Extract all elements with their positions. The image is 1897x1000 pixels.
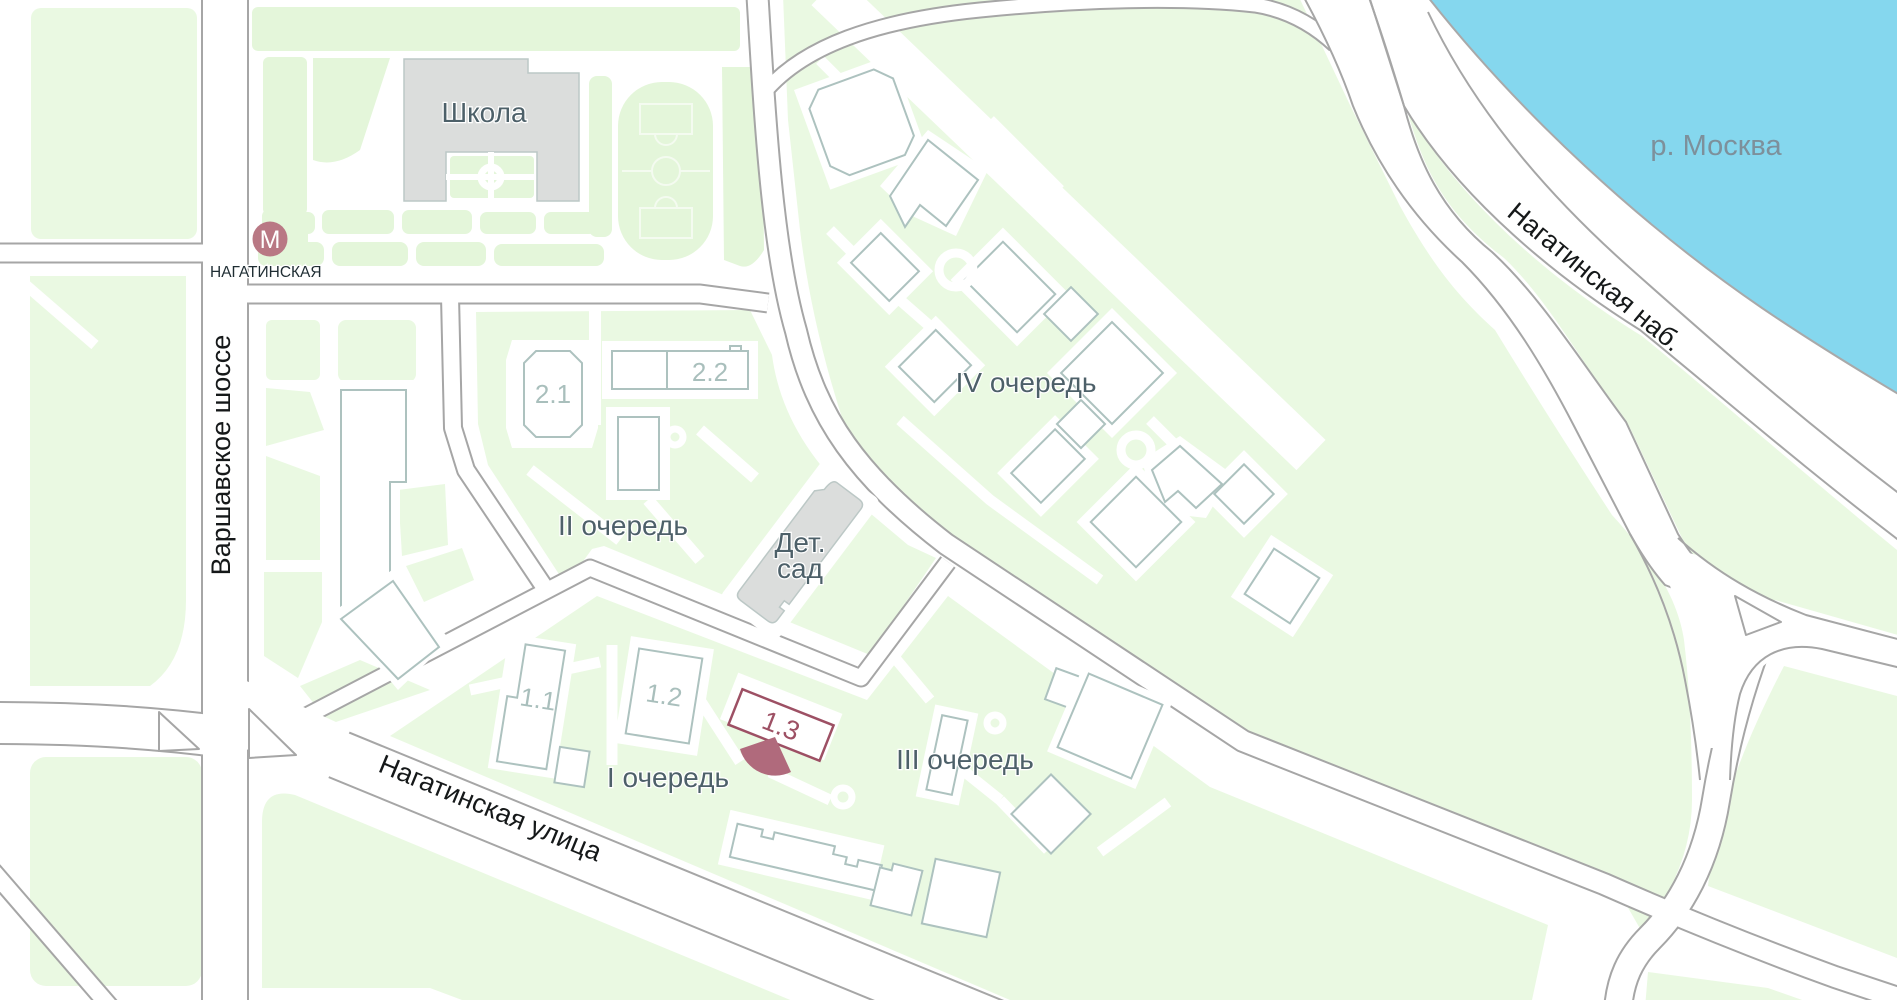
svg-text:НАГАТИНСКАЯ: НАГАТИНСКАЯ	[210, 264, 322, 281]
svg-text:сад: сад	[777, 553, 823, 584]
svg-text:М: М	[260, 226, 281, 254]
svg-text:2.2: 2.2	[692, 357, 728, 387]
svg-text:II очередь: II очередь	[558, 510, 688, 541]
svg-text:Школа: Школа	[441, 97, 527, 128]
svg-text:1.1: 1.1	[518, 681, 558, 716]
svg-text:I очередь: I очередь	[607, 762, 729, 793]
svg-text:III очередь: III очередь	[896, 744, 1034, 775]
svg-text:1.2: 1.2	[644, 677, 684, 712]
svg-text:2.1: 2.1	[535, 379, 571, 409]
svg-text:Варшавское шоссе: Варшавское шоссе	[206, 335, 236, 576]
svg-text:IV очередь: IV очередь	[956, 367, 1097, 398]
svg-text:р. Москва: р. Москва	[1650, 130, 1782, 162]
